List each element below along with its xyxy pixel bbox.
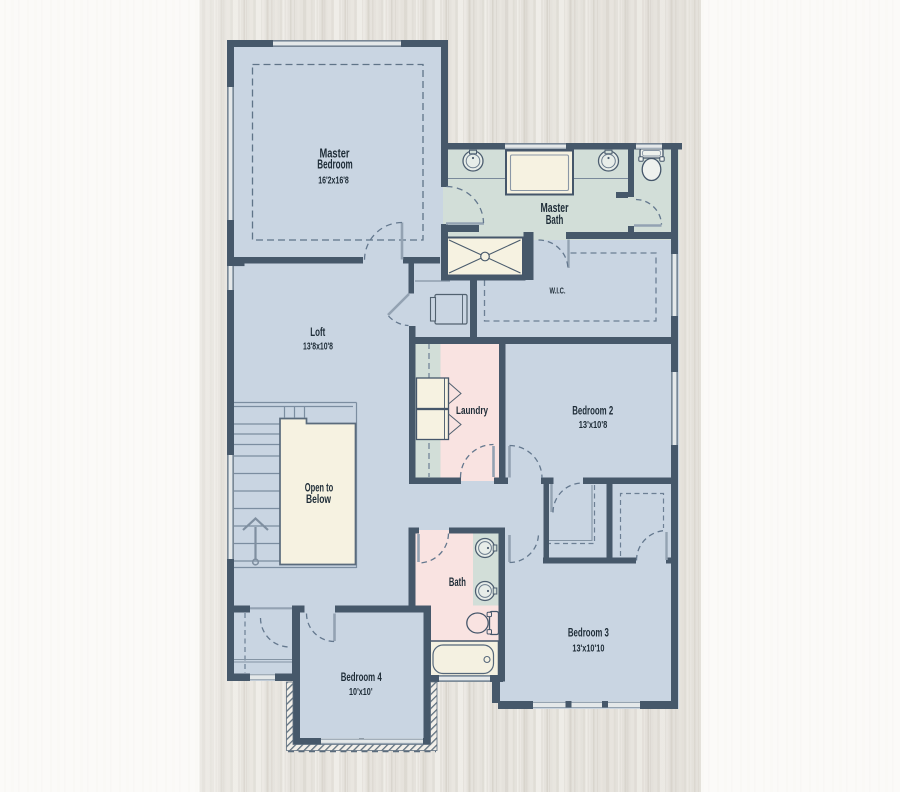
- svg-text:Bath: Bath: [546, 213, 564, 227]
- svg-text:13'x10'10: 13'x10'10: [572, 644, 604, 655]
- svg-text:Bedroom 3: Bedroom 3: [568, 626, 609, 640]
- svg-text:Below: Below: [306, 492, 331, 506]
- svg-text:Bedroom: Bedroom: [317, 158, 353, 172]
- svg-text:Bedroom 2: Bedroom 2: [572, 404, 613, 418]
- svg-text:Loft: Loft: [310, 325, 325, 339]
- svg-text:Laundry: Laundry: [456, 405, 489, 417]
- svg-text:Bedroom 4: Bedroom 4: [341, 670, 382, 684]
- svg-text:W.I.C.: W.I.C.: [550, 286, 566, 296]
- svg-text:13'8x10'8: 13'8x10'8: [303, 342, 333, 353]
- svg-text:Bath: Bath: [449, 575, 466, 589]
- svg-text:10'x10': 10'x10': [349, 687, 373, 698]
- svg-text:16'2x16'8: 16'2x16'8: [318, 175, 349, 187]
- svg-text:13'x10'8: 13'x10'8: [579, 420, 608, 431]
